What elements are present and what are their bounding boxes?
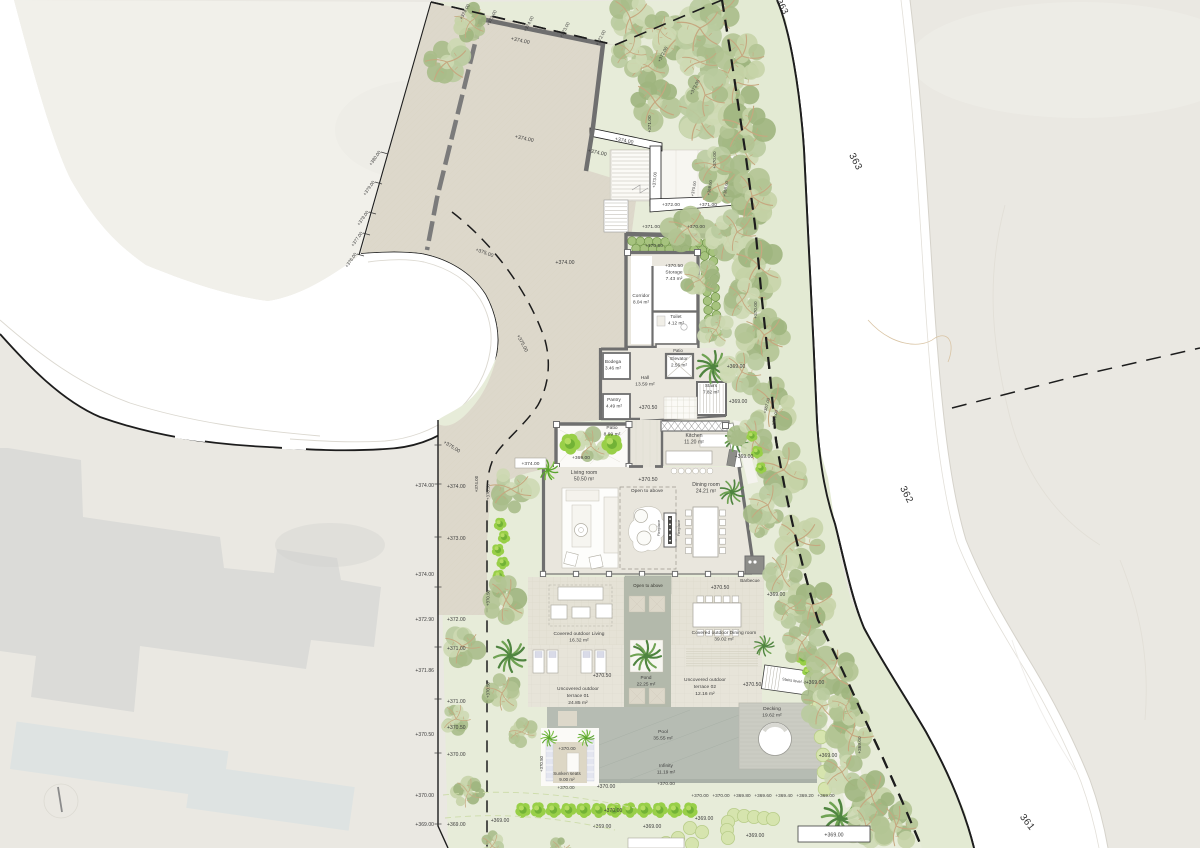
svg-text:Covered outdoor Dining room: Covered outdoor Dining room bbox=[692, 630, 757, 636]
svg-text:Hall: Hall bbox=[641, 375, 650, 381]
svg-text:+372.00: +372.00 bbox=[447, 617, 466, 623]
svg-text:Pantry: Pantry bbox=[607, 397, 621, 402]
svg-text:+371.00: +371.00 bbox=[647, 115, 652, 133]
svg-text:39.02 m²: 39.02 m² bbox=[714, 637, 734, 643]
svg-text:+370.00: +370.00 bbox=[712, 151, 717, 169]
svg-text:3.46 m²: 3.46 m² bbox=[605, 366, 621, 371]
svg-text:Barbecue: Barbecue bbox=[740, 578, 760, 583]
svg-text:+370.00: +370.00 bbox=[657, 781, 675, 787]
svg-text:+370.50: +370.50 bbox=[486, 681, 491, 697]
svg-text:+369.00: +369.00 bbox=[819, 753, 838, 759]
svg-text:+370.00: +370.00 bbox=[447, 752, 466, 758]
svg-text:19.62 m²: 19.62 m² bbox=[762, 713, 782, 719]
svg-text:+369.00: +369.00 bbox=[824, 833, 843, 839]
svg-text:Decking: Decking bbox=[763, 706, 781, 712]
svg-text:Fireplace: Fireplace bbox=[676, 520, 681, 536]
svg-text:Living room: Living room bbox=[571, 470, 597, 476]
svg-text:+369.00: +369.00 bbox=[695, 816, 714, 822]
svg-text:+369.00: +369.00 bbox=[735, 454, 754, 460]
svg-text:+370.50: +370.50 bbox=[638, 477, 657, 483]
svg-text:+370.00: +370.00 bbox=[558, 746, 576, 751]
svg-text:+370.00: +370.00 bbox=[712, 793, 730, 798]
svg-text:8.04 m²: 8.04 m² bbox=[633, 300, 649, 305]
svg-text:8.99 m²: 8.99 m² bbox=[604, 432, 621, 438]
svg-text:Fireplace: Fireplace bbox=[656, 520, 661, 536]
svg-text:+369.00: +369.00 bbox=[817, 793, 835, 798]
svg-text:Pool: Pool bbox=[658, 729, 668, 735]
svg-text:+370.50: +370.50 bbox=[743, 682, 762, 688]
svg-text:24.21 m²: 24.21 m² bbox=[696, 489, 716, 495]
svg-text:11.19 m²: 11.19 m² bbox=[657, 770, 676, 775]
svg-text:+370.50: +370.50 bbox=[447, 725, 466, 731]
svg-text:+369.00: +369.00 bbox=[746, 833, 765, 839]
svg-text:Open to above: Open to above bbox=[633, 583, 663, 588]
svg-text:+372.90: +372.90 bbox=[415, 617, 434, 623]
svg-text:4.49 m²: 4.49 m² bbox=[606, 404, 622, 409]
svg-text:+370.00: +370.00 bbox=[415, 793, 434, 799]
svg-text:+371.00: +371.00 bbox=[447, 699, 466, 705]
svg-text:Covered outdoor Living: Covered outdoor Living bbox=[553, 631, 604, 637]
svg-text:50.50 m²: 50.50 m² bbox=[574, 477, 594, 483]
svg-text:35.55 m²: 35.55 m² bbox=[653, 736, 673, 742]
svg-text:+369.00: +369.00 bbox=[806, 680, 825, 686]
svg-text:+371.00: +371.00 bbox=[447, 646, 466, 652]
svg-text:+370.50: +370.50 bbox=[665, 263, 683, 269]
svg-text:+370.50: +370.50 bbox=[639, 405, 658, 411]
svg-text:+369.80: +369.80 bbox=[733, 793, 751, 798]
svg-text:+369.00: +369.00 bbox=[643, 824, 662, 830]
svg-text:Storage: Storage bbox=[665, 270, 683, 276]
svg-text:+374.00: +374.00 bbox=[474, 475, 479, 492]
svg-text:+370.50: +370.50 bbox=[593, 673, 612, 679]
svg-text:+370.50: +370.50 bbox=[711, 585, 730, 591]
svg-text:+370.50: +370.50 bbox=[415, 732, 434, 738]
svg-text:+370.50: +370.50 bbox=[486, 483, 491, 499]
svg-text:+370.00: +370.00 bbox=[557, 785, 575, 790]
svg-text:Kitchen: Kitchen bbox=[685, 433, 702, 439]
svg-text:terrace 02: terrace 02 bbox=[694, 684, 717, 690]
svg-text:+373.00: +373.00 bbox=[447, 536, 466, 542]
svg-text:+374.00: +374.00 bbox=[555, 260, 574, 266]
svg-text:7.82 m²: 7.82 m² bbox=[703, 390, 719, 395]
svg-text:+371.00: +371.00 bbox=[699, 202, 717, 208]
svg-text:+369.00: +369.00 bbox=[857, 736, 862, 754]
svg-text:+369.00: +369.00 bbox=[572, 455, 590, 461]
svg-text:7.43 m²: 7.43 m² bbox=[666, 276, 683, 282]
svg-text:+369.20: +369.20 bbox=[796, 793, 814, 798]
svg-text:9.00 m²: 9.00 m² bbox=[559, 777, 575, 782]
svg-text:16.32 m²: 16.32 m² bbox=[569, 638, 589, 644]
svg-text:24.85 m²: 24.85 m² bbox=[568, 700, 588, 706]
svg-text:+374.00: +374.00 bbox=[522, 461, 540, 467]
svg-text:+370.50: +370.50 bbox=[486, 589, 491, 605]
svg-text:Pond: Pond bbox=[640, 675, 651, 680]
svg-text:Toilet: Toilet bbox=[670, 314, 682, 319]
svg-text:13.59 m²: 13.59 m² bbox=[635, 382, 655, 388]
svg-text:+369.00: +369.00 bbox=[767, 592, 786, 598]
svg-text:12.16 m²: 12.16 m² bbox=[695, 691, 715, 697]
svg-text:+374.00: +374.00 bbox=[415, 483, 434, 489]
svg-text:+374.00: +374.00 bbox=[415, 572, 434, 578]
svg-text:Patio: Patio bbox=[606, 425, 618, 431]
svg-text:+370.00: +370.00 bbox=[687, 224, 705, 230]
svg-text:Infinity: Infinity bbox=[659, 763, 673, 768]
svg-text:Sunken seats: Sunken seats bbox=[553, 771, 581, 776]
svg-text:+374.00: +374.00 bbox=[447, 484, 466, 490]
svg-text:Stairs: Stairs bbox=[705, 383, 718, 388]
svg-text:+372.00: +372.00 bbox=[662, 202, 680, 208]
svg-text:+369.00: +369.00 bbox=[447, 822, 466, 828]
svg-text:4.12 m²: 4.12 m² bbox=[668, 321, 684, 326]
svg-text:22.25 m²: 22.25 m² bbox=[637, 682, 656, 687]
svg-text:+370.50: +370.50 bbox=[645, 243, 663, 249]
svg-text:+370.00: +370.00 bbox=[604, 808, 623, 814]
svg-text:Uncovered outdoor: Uncovered outdoor bbox=[684, 677, 726, 683]
svg-text:Open to above: Open to above bbox=[631, 488, 664, 494]
svg-text:terrace 01: terrace 01 bbox=[567, 693, 590, 699]
svg-text:Elevator: Elevator bbox=[670, 356, 688, 361]
svg-text:+371.00: +371.00 bbox=[642, 224, 660, 230]
svg-text:+369.00: +369.00 bbox=[491, 818, 510, 824]
svg-text:+371.86: +371.86 bbox=[415, 668, 434, 674]
svg-text:Bodega: Bodega bbox=[605, 359, 622, 364]
svg-text:+369.00: +369.00 bbox=[415, 822, 434, 828]
svg-text:+370.00: +370.00 bbox=[691, 793, 709, 798]
svg-text:Uncovered outdoor: Uncovered outdoor bbox=[557, 686, 599, 692]
svg-text:+369.60: +369.60 bbox=[754, 793, 772, 798]
svg-text:+369.40: +369.40 bbox=[775, 793, 793, 798]
svg-text:Patio: Patio bbox=[673, 348, 683, 353]
svg-text:+370.50: +370.50 bbox=[539, 755, 544, 771]
svg-text:11.20 m²: 11.20 m² bbox=[684, 440, 704, 446]
svg-text:+370.00: +370.00 bbox=[597, 784, 616, 790]
svg-text:Dining room: Dining room bbox=[692, 482, 720, 488]
svg-text:+369.00: +369.00 bbox=[729, 399, 748, 405]
svg-text:+369.00: +369.00 bbox=[727, 364, 746, 370]
svg-text:+370.00: +370.00 bbox=[753, 301, 758, 319]
svg-text:Corridor: Corridor bbox=[632, 293, 650, 298]
svg-text:2.56 m²: 2.56 m² bbox=[671, 363, 687, 368]
